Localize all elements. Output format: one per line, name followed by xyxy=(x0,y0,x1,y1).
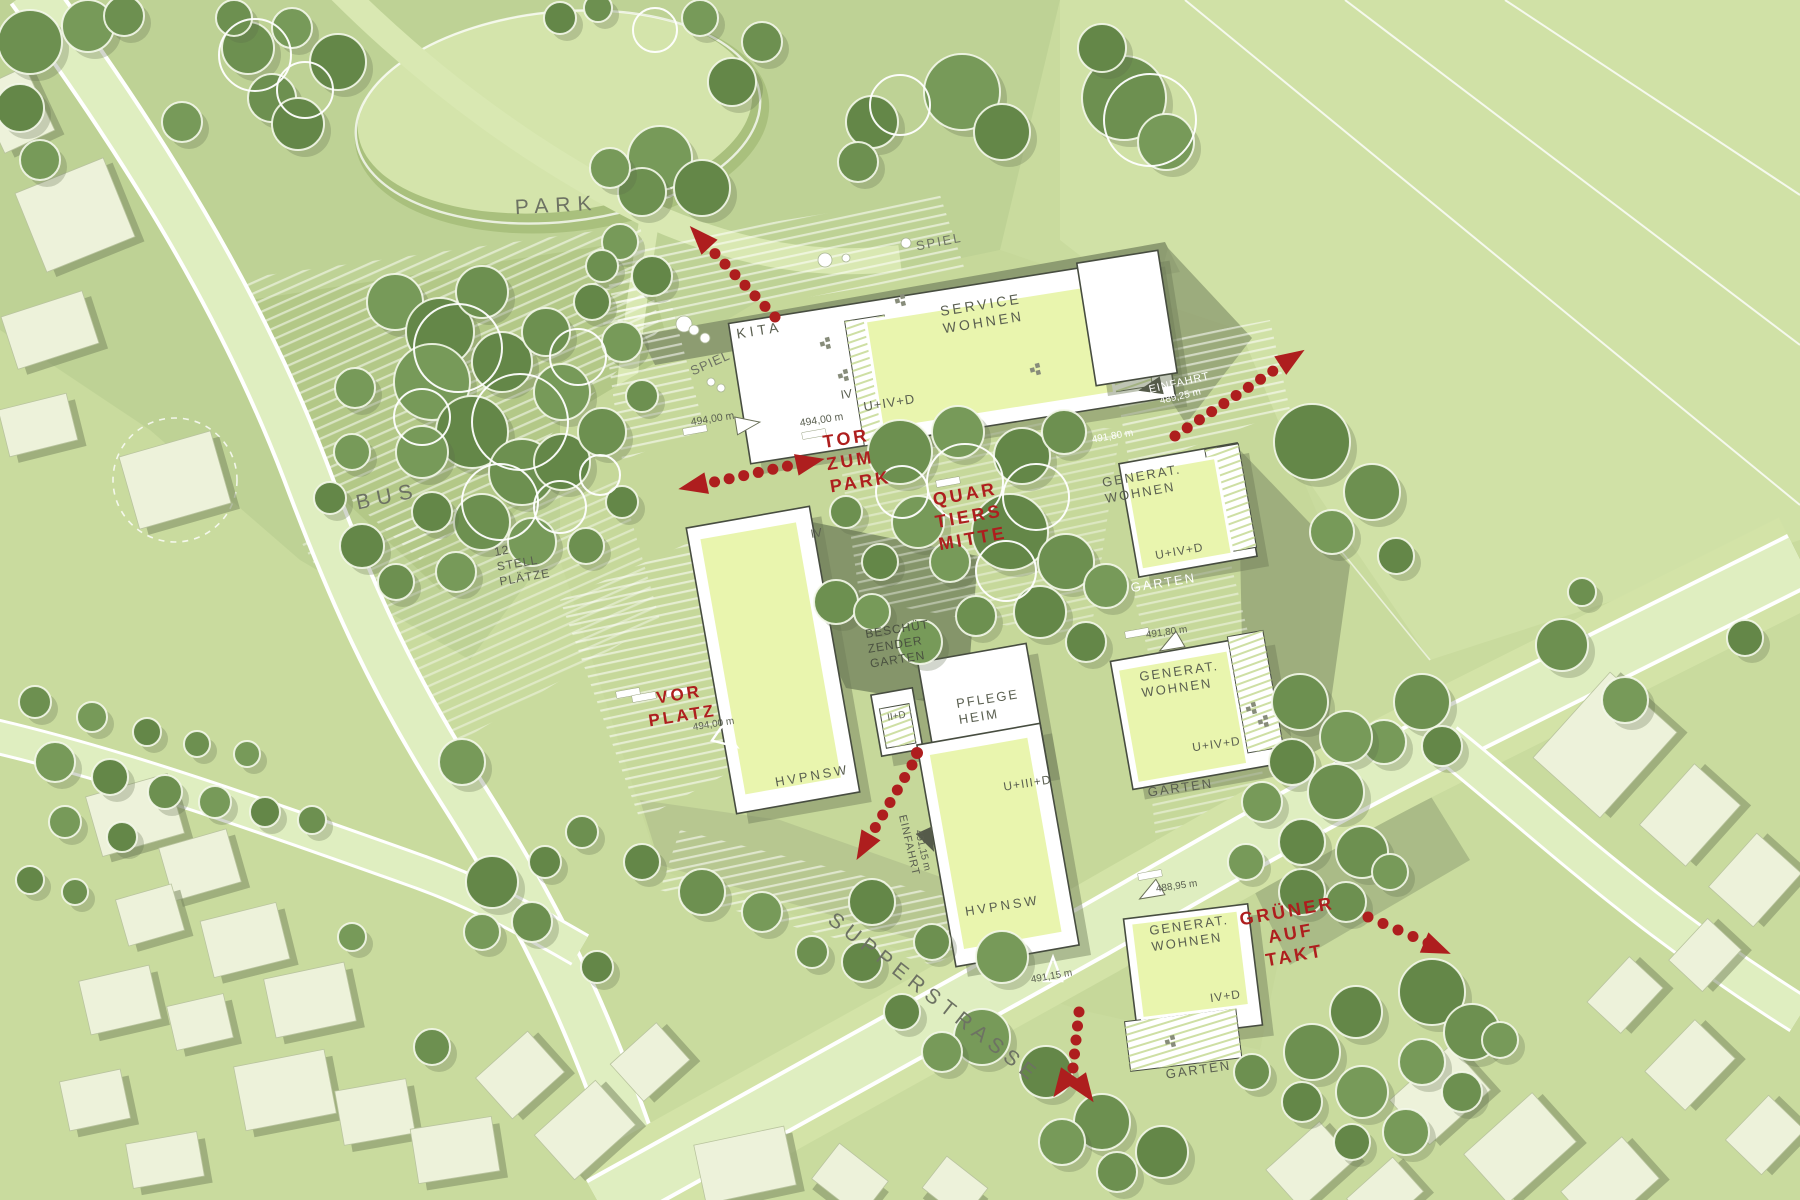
playground-dot xyxy=(901,238,911,248)
playground-dot xyxy=(842,254,850,262)
park-label: PARK xyxy=(514,192,599,219)
playground-dot xyxy=(700,333,710,343)
playground-dot xyxy=(818,253,832,267)
playground-dot xyxy=(717,384,725,392)
playground-dot xyxy=(707,378,715,386)
site-plan-svg: PARKBUSSUPPERSTRASSESPIELSPIELKITASERVIC… xyxy=(0,0,1800,1200)
service-iv-label: IV xyxy=(840,386,853,402)
site-plan-canvas: PARKBUSSUPPERSTRASSESPIELSPIELKITASERVIC… xyxy=(0,0,1800,1200)
quartiersmitte-label: QUARTIERSMITTE xyxy=(929,478,1008,554)
left-building-iv-label: IV xyxy=(810,525,824,541)
generat-wohnen-1 xyxy=(1119,441,1269,589)
playground-dot xyxy=(689,325,699,335)
